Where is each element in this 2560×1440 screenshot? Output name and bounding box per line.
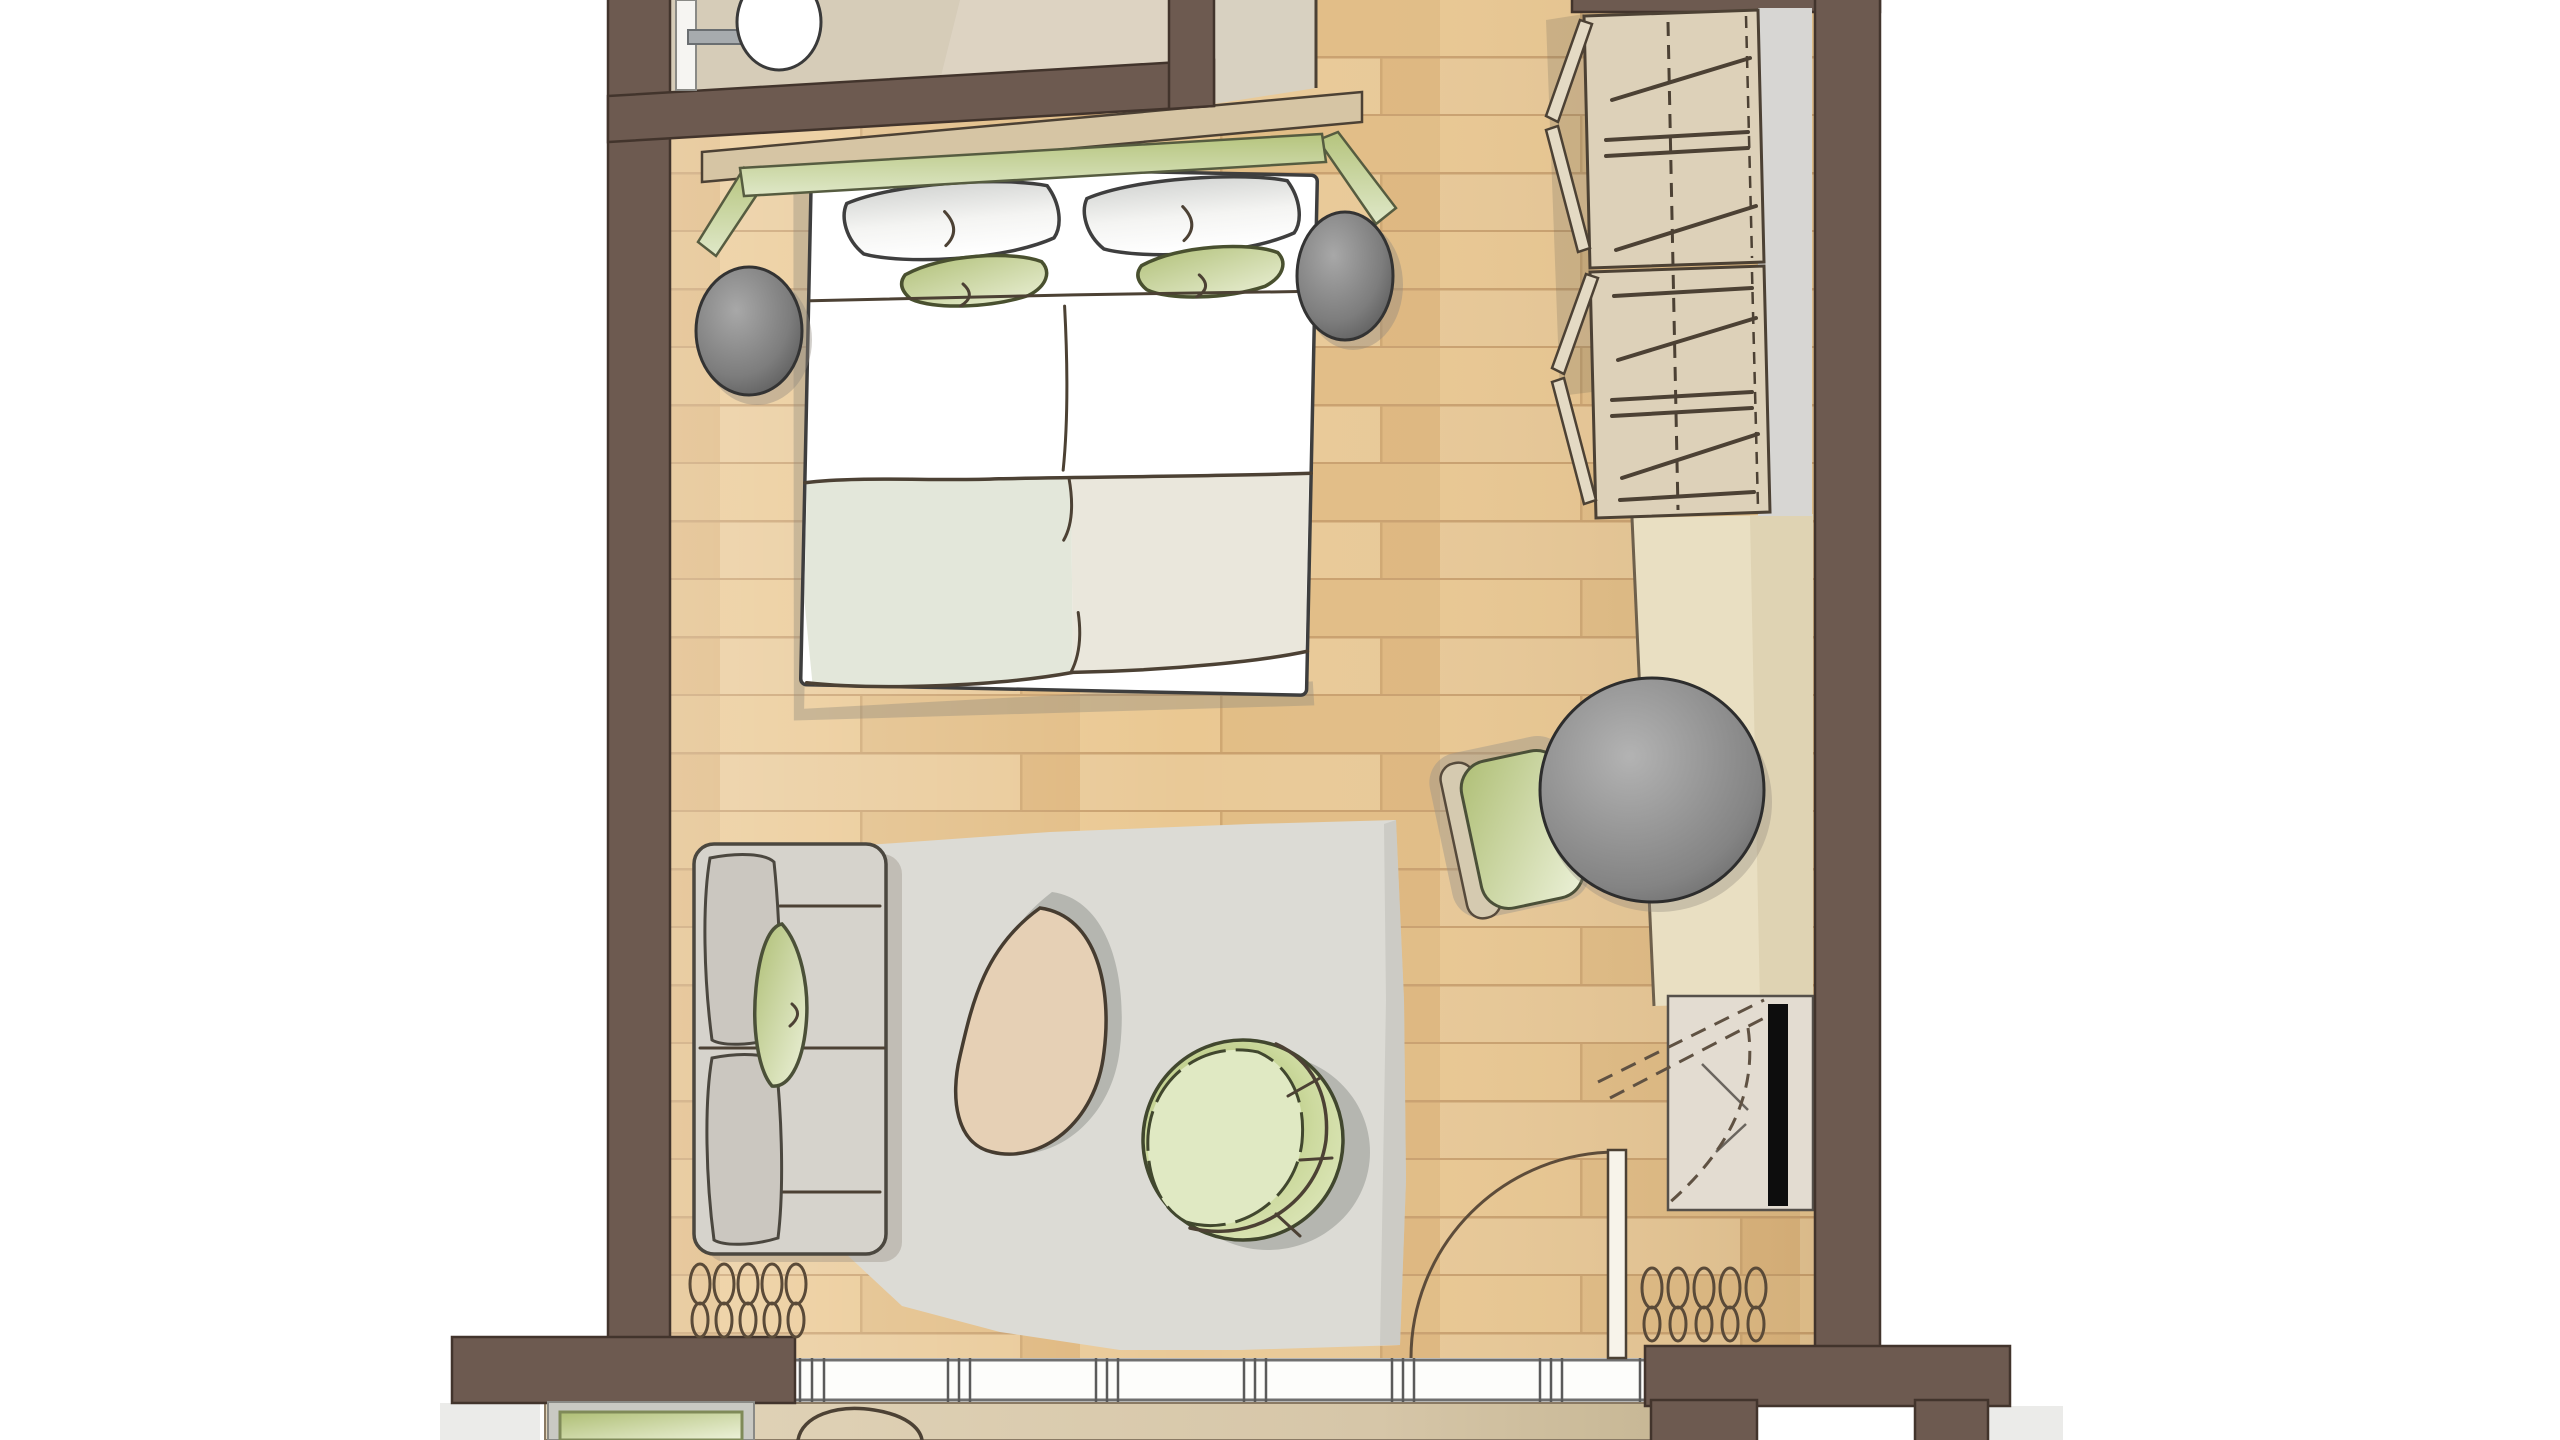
bathroom-right-wall (1169, 0, 1214, 109)
closet-niche-floor (1214, 0, 1316, 104)
floor-plan-svg (0, 0, 2560, 1440)
window-band (795, 1358, 1645, 1402)
left-wall (608, 0, 670, 1344)
sofa (694, 844, 902, 1262)
stool-left (696, 267, 802, 395)
gray-patch-bottom-left (440, 1403, 540, 1440)
blanket-left (803, 473, 1077, 692)
tv-screen (1768, 1004, 1788, 1206)
tub-chair-arm-crease-2 (1300, 1158, 1332, 1160)
planter-box (548, 1402, 754, 1440)
right-wall (1815, 0, 1880, 1352)
table-top (1540, 678, 1764, 902)
gray-patch-bottom-right (1988, 1406, 2063, 1440)
planter-green (560, 1412, 742, 1440)
balcony-pier-left (1651, 1400, 1757, 1440)
blanket-right (1067, 468, 1309, 677)
bed (782, 164, 1326, 731)
window (795, 1358, 1645, 1402)
bottom-right-wall-band (1645, 1346, 2010, 1406)
balcony-pier-right (1915, 1400, 1988, 1440)
stool-right (1297, 212, 1393, 340)
floor-plan-image (0, 0, 2560, 1440)
door-leaf (1608, 1150, 1626, 1358)
left-t-wall (452, 1337, 795, 1403)
